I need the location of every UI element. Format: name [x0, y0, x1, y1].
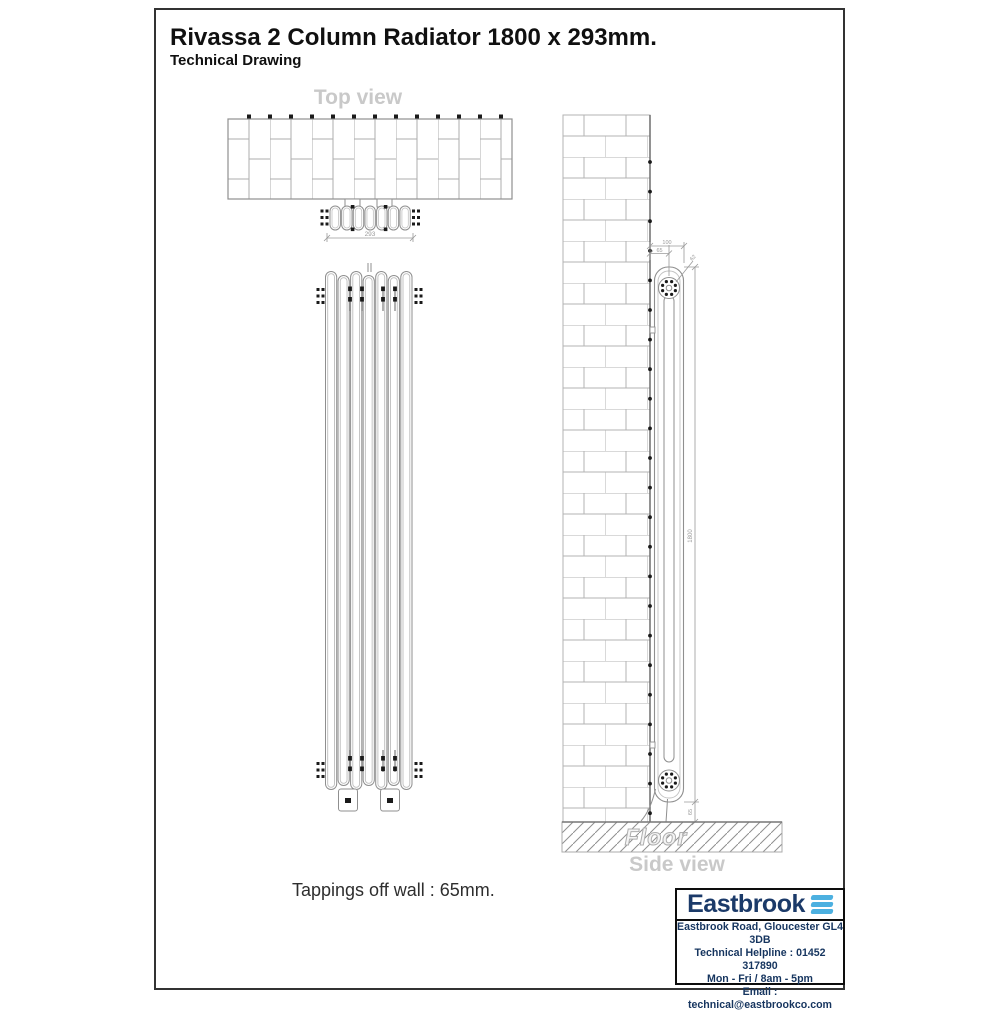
brand-logo-row: Eastbrook — [677, 890, 843, 921]
manufacturer-info-box: Eastbrook Eastbrook Road, Gloucester GL4… — [675, 888, 845, 985]
helpline-line: Technical Helpline : 01452 317890 — [677, 947, 843, 973]
air-vent — [368, 263, 371, 272]
side-view: 100 65 62 1800 65 Floor Side view — [562, 115, 782, 876]
brand-waves-icon — [811, 895, 833, 914]
tapping-dim-label: 65 — [656, 248, 662, 254]
top-view: Top view 293 — [228, 86, 512, 242]
address-line: Eastbrook Road, Gloucester GL4 3DB — [677, 921, 843, 947]
wall-anchor-dots — [247, 115, 503, 119]
hours-line: Mon - Fri / 8am - 5pm — [677, 973, 843, 986]
floor-gap-dim-label: 65 — [688, 809, 694, 815]
top-view-width-dim-label: 293 — [365, 231, 376, 238]
floor-label: Floor — [625, 824, 688, 850]
height-dim-label: 1800 — [688, 529, 694, 543]
top-view-sections — [330, 206, 410, 230]
top-view-label: Top view — [314, 86, 403, 109]
contact-rows: Eastbrook Road, Gloucester GL4 3DB Techn… — [677, 921, 843, 1012]
tappings-note: Tappings off wall : 65mm. — [292, 880, 495, 901]
depth-dim-label: 100 — [662, 240, 671, 246]
technical-drawing: Top view 293 — [0, 0, 1000, 1000]
brand-logo-text: Eastbrook — [687, 890, 805, 919]
top-view-wall — [228, 119, 512, 199]
side-view-label: Side view — [629, 853, 725, 876]
front-view-columns — [326, 272, 413, 790]
collar-dim-label: 62 — [689, 254, 698, 263]
front-view — [317, 263, 423, 811]
email-line: Email : technical@eastbrookco.com — [677, 986, 843, 1012]
side-view-wall — [563, 115, 650, 822]
front-view-feet — [339, 789, 400, 811]
